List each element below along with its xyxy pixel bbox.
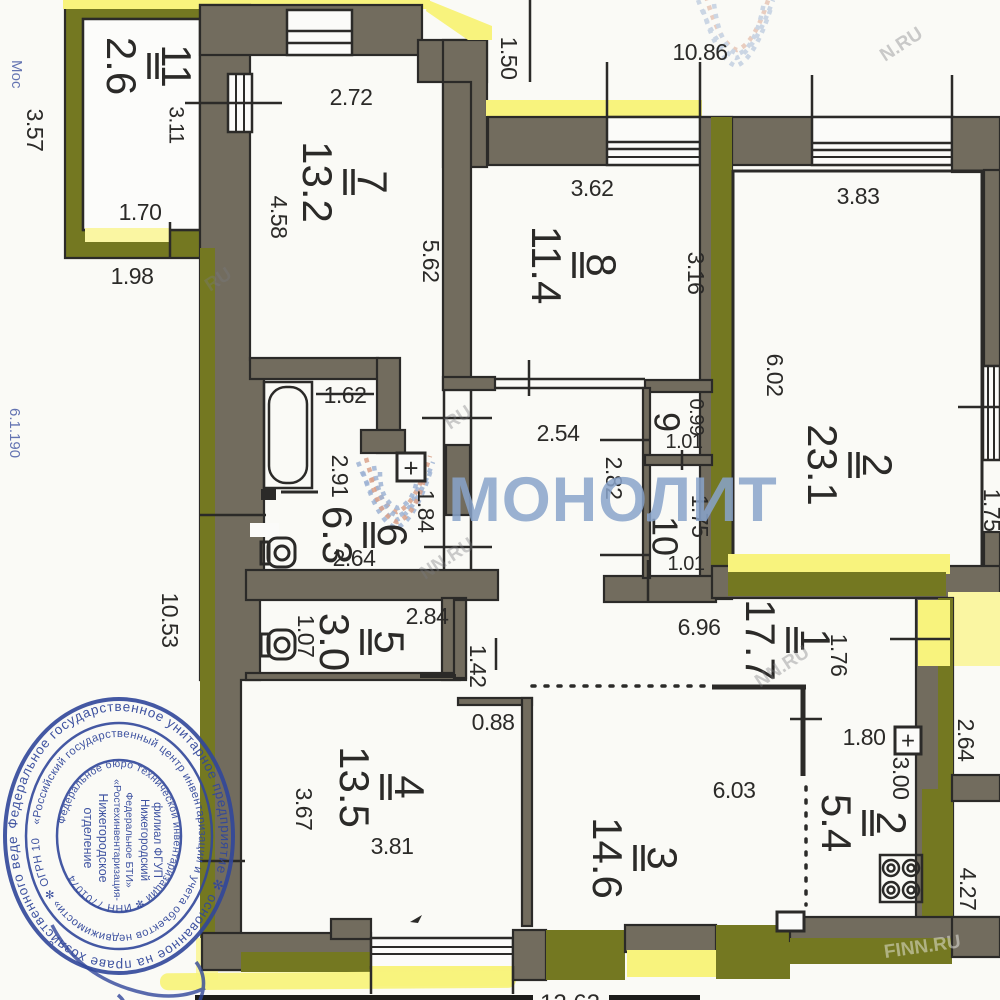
svg-text:+: + [403,453,418,483]
svg-text:3.00: 3.00 [888,757,914,800]
svg-text:1.75: 1.75 [979,489,1000,532]
svg-text:3.67: 3.67 [291,788,317,831]
svg-text:5.4: 5.4 [813,794,860,852]
svg-text:1.01: 1.01 [668,553,705,575]
svg-text:6: 6 [369,523,416,546]
svg-text:0.88: 0.88 [472,709,515,735]
svg-text:7: 7 [349,170,396,193]
svg-text:Мос: Мос [8,60,25,89]
svg-text:2.64: 2.64 [953,719,979,762]
svg-text:11: 11 [153,44,200,88]
svg-text:3.81: 3.81 [371,833,414,859]
svg-text:1.80: 1.80 [843,724,886,750]
svg-text:2.6: 2.6 [98,37,145,95]
svg-text:6.03: 6.03 [713,777,756,803]
svg-text:1.70: 1.70 [119,199,162,225]
svg-text:5.62: 5.62 [418,240,444,283]
svg-text:8: 8 [578,253,625,276]
svg-text:13.2: 13.2 [294,141,341,223]
svg-text:23.1: 23.1 [799,424,846,506]
svg-text:2.54: 2.54 [537,420,580,446]
svg-text:9: 9 [647,412,688,432]
svg-text:2.84: 2.84 [406,603,449,629]
svg-text:10.86: 10.86 [672,39,727,65]
svg-text:2.91: 2.91 [327,455,353,498]
svg-text:4.58: 4.58 [266,196,292,239]
svg-text:1.98: 1.98 [111,263,154,289]
svg-text:11.4: 11.4 [523,226,570,305]
svg-text:3.57: 3.57 [22,109,48,152]
svg-text:3.0: 3.0 [311,613,358,671]
svg-text:2: 2 [854,453,901,476]
svg-text:10.53: 10.53 [157,592,183,647]
svg-text:2.72: 2.72 [330,84,373,110]
svg-text:3: 3 [639,846,686,869]
svg-text:«Ростехинвентаризация-: «Ростехинвентаризация- [111,779,123,901]
svg-text:Нижегородский: Нижегородский [138,799,150,881]
svg-text:1.50: 1.50 [496,37,522,80]
svg-text:1.62: 1.62 [324,382,367,408]
svg-text:Федеральное БТИ»: Федеральное БТИ» [123,792,135,888]
svg-text:6.96: 6.96 [678,614,721,640]
svg-text:3.62: 3.62 [571,175,614,201]
svg-text:12.62: 12.62 [540,990,600,1000]
svg-text:6.02: 6.02 [762,354,788,397]
svg-text:4: 4 [386,775,433,798]
svg-text:Нижегородское: Нижегородское [96,793,110,882]
svg-text:3.11: 3.11 [165,106,188,143]
svg-text:14.6: 14.6 [584,817,631,899]
svg-text:13.5: 13.5 [331,746,378,828]
svg-text:отделение: отделение [81,808,95,869]
svg-text:МОНОЛИТ: МОНОЛИТ [448,465,777,535]
svg-text:1.42: 1.42 [465,645,491,688]
svg-text:5: 5 [366,630,413,653]
svg-text:3.16: 3.16 [683,252,709,295]
svg-text:3.83: 3.83 [837,183,880,209]
svg-text:4.27: 4.27 [955,868,981,911]
svg-text:2: 2 [868,811,915,834]
svg-text:филиал ФГУП: филиал ФГУП [151,802,163,878]
svg-text:6.1.190: 6.1.190 [6,408,23,458]
svg-text:+: + [901,728,915,755]
svg-text:6.3: 6.3 [314,506,361,564]
